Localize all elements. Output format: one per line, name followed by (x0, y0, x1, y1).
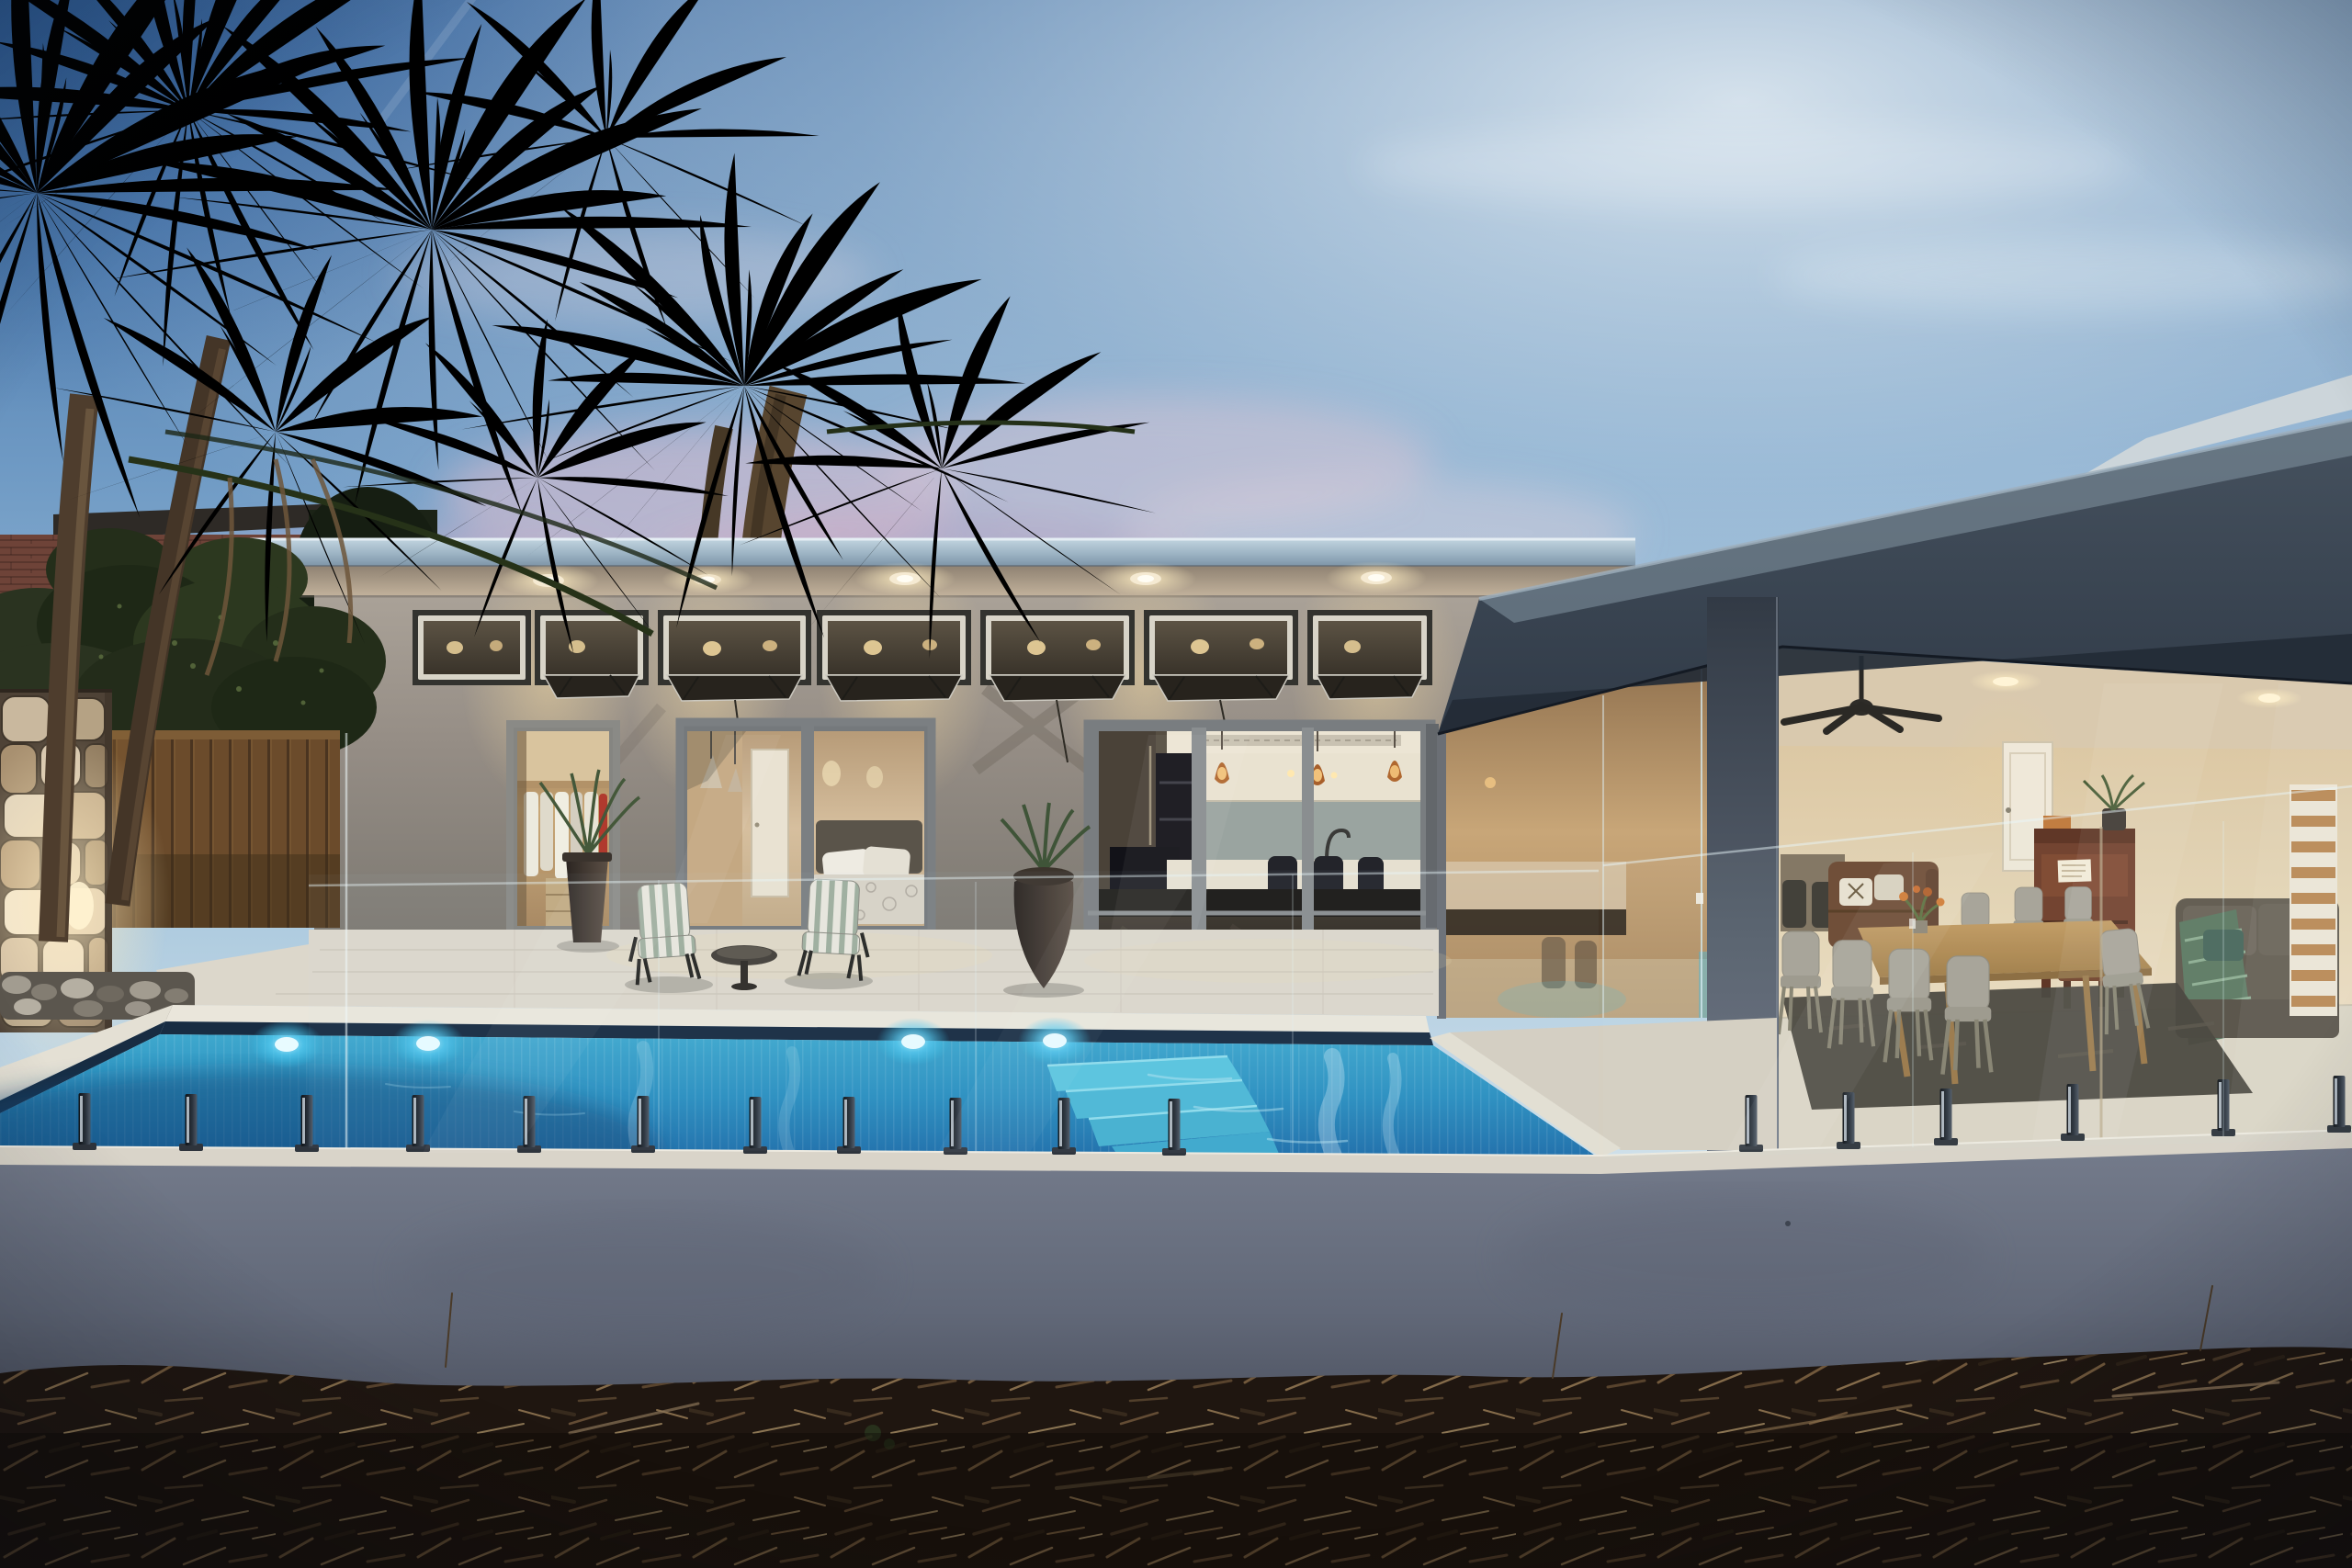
property-photo (0, 0, 2352, 1568)
vignette (0, 0, 2352, 1568)
photo-canvas (0, 0, 2352, 1568)
